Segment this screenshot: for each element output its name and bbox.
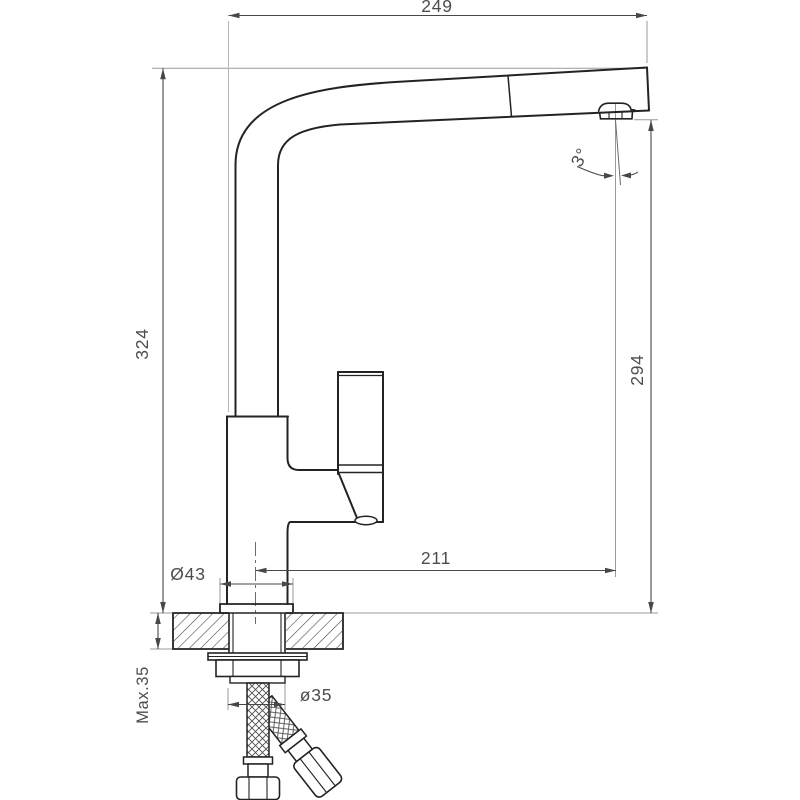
- pullout-head-seam: [508, 76, 512, 117]
- mounting-shank: [229, 613, 285, 653]
- base-flange: [220, 604, 293, 613]
- handle-pivot: [355, 516, 377, 524]
- dim-deck-thickness: Max.35: [134, 613, 158, 724]
- vertical-hose-braid: [247, 683, 269, 757]
- mounting-collar: [230, 677, 285, 684]
- faucet-body: [227, 68, 649, 605]
- drawing-canvas: 3° 249 324 294 211 Ø43 ø35: [0, 0, 800, 800]
- spout-inner-edge: [278, 111, 649, 417]
- angle-arrow-left: [604, 173, 614, 179]
- counter-hatch-left: [173, 613, 229, 649]
- dim-total-height: 324: [132, 68, 163, 613]
- extension-lines: [150, 21, 658, 710]
- vertical-hose-collar: [244, 757, 273, 764]
- dim-outlet-height: 294: [627, 120, 651, 613]
- dim-total-height-label: 324: [132, 328, 152, 360]
- dim-outlet-height-label: 294: [627, 354, 647, 386]
- dim-spout-reach-label: 249: [421, 0, 453, 16]
- dim-hole-diameter-label: ø35: [300, 685, 333, 705]
- dim-spout-reach: 249: [229, 0, 648, 16]
- mounting-nut: [216, 660, 299, 677]
- vertical-hose-tube: [248, 764, 268, 777]
- dim-angle-label: 3°: [567, 144, 593, 170]
- counter-hatch-right: [286, 613, 343, 649]
- handle-cone-edge: [339, 474, 357, 518]
- dim-base-diameter: Ø43: [170, 564, 293, 584]
- dim-hole-diameter: ø35: [228, 685, 332, 705]
- angle-tilted-line: [616, 120, 621, 185]
- dim-deck-thickness-label: Max.35: [134, 666, 152, 724]
- spout-end-edge: [647, 68, 649, 111]
- angle-arrow-right: [621, 172, 631, 178]
- vertical-hose-nut: [237, 777, 280, 800]
- housing-top-ledge: [288, 458, 339, 470]
- dim-outlet-reach: 211: [256, 548, 617, 571]
- dim-base-diameter-label: Ø43: [170, 564, 205, 584]
- counter-deck: [173, 613, 343, 649]
- faucet-technical-drawing: 3° 249 324 294 211 Ø43 ø35: [0, 0, 800, 800]
- angle-annotation: 3°: [567, 120, 638, 185]
- dim-outlet-reach-label: 211: [421, 548, 451, 568]
